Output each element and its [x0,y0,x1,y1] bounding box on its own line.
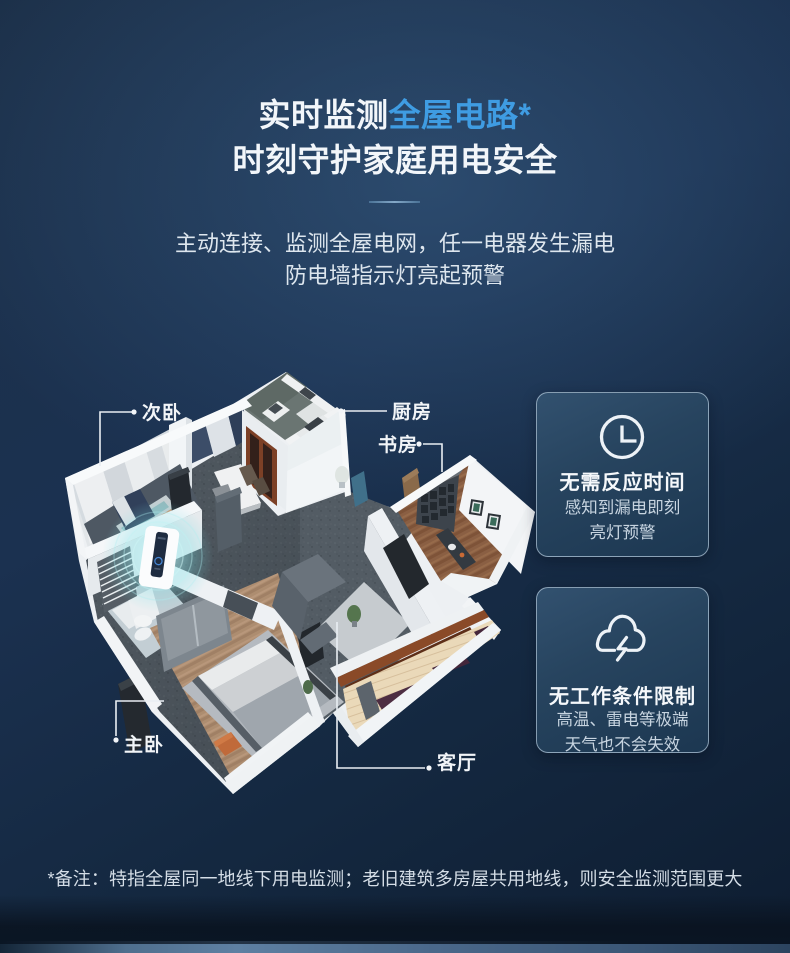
svg-text:厨房: 厨房 [392,400,432,423]
svg-text:次卧: 次卧 [142,401,182,424]
svg-text:书房: 书房 [378,433,418,456]
svg-text:主卧: 主卧 [124,734,164,756]
svg-text:客厅: 客厅 [437,751,477,774]
